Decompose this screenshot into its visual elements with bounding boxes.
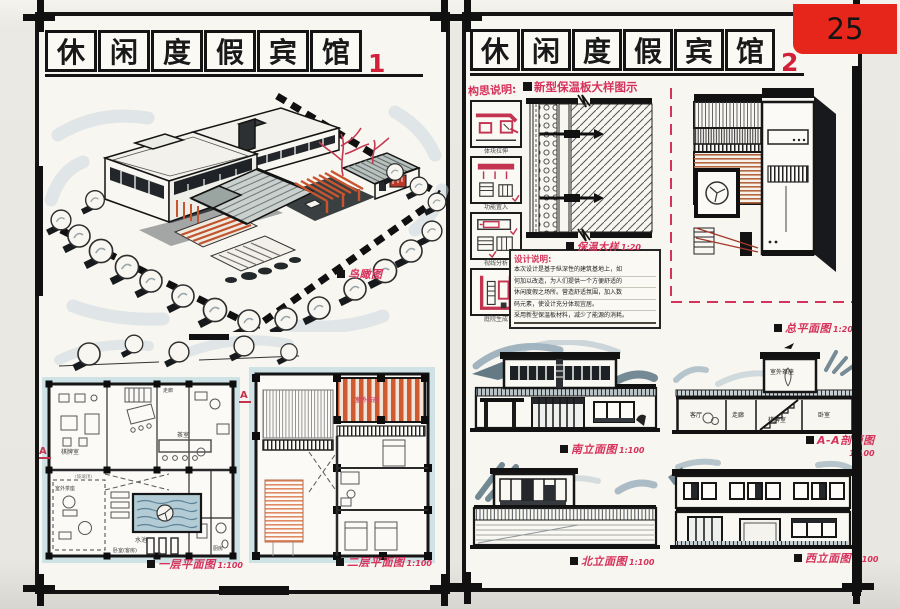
louver-comb xyxy=(263,440,333,450)
title-char-box: 假 xyxy=(204,30,256,72)
section-room-label: 棋牌室 xyxy=(768,416,786,424)
sketch-function xyxy=(470,156,522,204)
bullet-square xyxy=(523,82,532,91)
north-elevation-drawing xyxy=(468,457,662,552)
title-char-box: 闲 xyxy=(98,30,150,72)
section-label: A-A剖面图 1:100 xyxy=(806,435,875,458)
plan-1f: 棋牌室 走廊 茶室 水池 室外茶座 (玻璃顶) 卧室(客房) 厨房 A xyxy=(39,380,237,560)
cast-shadow xyxy=(814,96,836,272)
notes-line: 码元素，使设计充分体现宜居。 xyxy=(514,300,656,312)
title-char-box: 休 xyxy=(470,29,520,71)
concrete-wall-layer xyxy=(571,104,652,232)
sketch-caption: 体块拉伸 xyxy=(468,148,524,155)
site-plan-label: 总平面图1:200 xyxy=(774,320,858,336)
room-label: 室外茶座 xyxy=(55,485,75,492)
sketch-massing xyxy=(470,100,522,148)
plan2-label: 二层平面图1:100 xyxy=(336,554,432,570)
south-elevation-drawing xyxy=(468,340,662,438)
title-char-box: 闲 xyxy=(521,29,571,71)
notes-line: 休闲度假之场所。营造舒适氛围，加入数 xyxy=(514,288,656,300)
bullet-square xyxy=(774,324,782,332)
plan-2f: 室外茶座 A xyxy=(239,370,432,560)
concept-sketch-2: 功能置入 xyxy=(468,156,524,211)
border-overdraw xyxy=(35,166,43,296)
birdseye-label: 鸟瞰图 xyxy=(337,266,383,282)
section-room-label: 室外茶座 xyxy=(770,368,794,376)
title-char-box: 宾 xyxy=(674,29,724,71)
title-char-box: 休 xyxy=(45,30,97,72)
bullet-square xyxy=(570,557,578,565)
pergola-2f xyxy=(337,378,425,422)
stair-comb xyxy=(337,426,425,436)
concept-title: 构思说明: xyxy=(468,81,517,100)
sheet-2: 休 闲 度 假 宾 馆 2 构思说明: 体块拉伸 xyxy=(462,12,862,592)
notes-line: 本次设计是基于纵深性的建筑基地上，如 xyxy=(514,265,656,277)
svg-text:A: A xyxy=(240,390,248,401)
bullet-square xyxy=(794,554,802,562)
room-label: 茶室 xyxy=(177,431,189,439)
corner-tick xyxy=(441,0,448,32)
corner-tick xyxy=(441,574,448,606)
south-elevation-label: 南立面图1:100 xyxy=(560,441,644,457)
bullet-square xyxy=(566,242,574,250)
bullet-square xyxy=(336,558,344,566)
svg-text:A: A xyxy=(39,446,47,457)
room-label: 卧室(客房) xyxy=(113,547,137,554)
bullet-square xyxy=(560,445,568,453)
sheet-1: 休 闲 度 假 宾 馆 1 xyxy=(35,12,450,594)
lower-roof-stripes xyxy=(265,480,303,542)
notes-line: 何加以改造，为人们提供一个方便舒适的 xyxy=(514,277,656,289)
roof-arrow xyxy=(784,343,794,349)
building-volumes xyxy=(105,108,419,224)
section-room-label: 走廊 xyxy=(732,411,744,419)
detail-title: 新型保温板大样图示 xyxy=(523,79,638,95)
title-char-box: 度 xyxy=(151,30,203,72)
corner-tick xyxy=(464,572,471,604)
floor-plans-drawing: 棋牌室 走廊 茶室 水池 室外茶座 (玻璃顶) 卧室(客房) 厨房 A xyxy=(39,332,437,572)
title-char-box: 宾 xyxy=(257,30,309,72)
border-overdraw xyxy=(852,66,861,596)
title-underline xyxy=(470,73,804,76)
plan1-label: 一层平面图1:100 xyxy=(147,556,243,572)
west-elevation-drawing xyxy=(668,457,860,552)
page-number-badge: 25 xyxy=(793,4,897,54)
room-label: 厨房 xyxy=(213,545,223,552)
birdseye-drawing xyxy=(43,80,449,332)
design-notes: 设计说明: 本次设计是基于纵深性的建筑基地上，如 何加以改造，为人们提供一个方便… xyxy=(509,249,661,329)
sheet-number: 1 xyxy=(368,49,385,78)
room-label: (玻璃顶) xyxy=(75,473,92,480)
room-label: 棋牌室 xyxy=(61,448,79,456)
title-char-box: 馆 xyxy=(725,29,775,71)
notes-line: 采用新型保温板材料，减少了能源的消耗。 xyxy=(514,311,656,324)
site-plan-drawing xyxy=(666,82,862,314)
insulation-board-layer xyxy=(559,104,569,232)
north-elevation-label: 北立面图1:100 xyxy=(570,553,654,569)
west-elevation-label: 西立面图1:100 xyxy=(794,550,878,566)
sheet1-title: 休 闲 度 假 宾 馆 1 xyxy=(45,30,385,72)
section-drawing: 室外茶座 客厅 走廊 棋牌室 卧室 xyxy=(668,340,860,438)
title-char-box: 假 xyxy=(623,29,673,71)
section-room-label: 客厅 xyxy=(690,411,702,419)
room-label-red: 室外茶座 xyxy=(355,396,379,404)
sheet2-title: 休 闲 度 假 宾 馆 2 xyxy=(470,29,798,71)
title-underline xyxy=(45,74,423,77)
sheet-number: 2 xyxy=(781,48,798,77)
corner-tick xyxy=(37,0,44,32)
concept-sketch-1: 体块拉伸 xyxy=(468,100,524,155)
stair xyxy=(760,400,798,430)
insulation-detail-drawing xyxy=(524,94,659,244)
section-room-label: 卧室 xyxy=(818,411,830,419)
corner-tick xyxy=(37,574,44,606)
scanned-presentation-page: 休 闲 度 假 宾 馆 1 xyxy=(0,0,900,609)
room-label: 水池 xyxy=(135,536,147,544)
title-char-box: 馆 xyxy=(310,30,362,72)
detail-label: 保温大样1:20 xyxy=(566,238,641,253)
corner-tick xyxy=(464,0,471,32)
sketch-caption: 功能置入 xyxy=(468,204,524,211)
bullet-square xyxy=(147,560,155,568)
bullet-square xyxy=(806,436,814,444)
gravel-layer xyxy=(539,104,557,232)
notes-title: 设计说明: xyxy=(514,253,656,265)
louver-zone xyxy=(263,390,333,438)
bullet-square xyxy=(337,270,345,278)
tree-row xyxy=(59,334,299,368)
border-overdraw xyxy=(219,586,289,595)
title-char-box: 度 xyxy=(572,29,622,71)
room-label: 走廊 xyxy=(163,387,173,394)
